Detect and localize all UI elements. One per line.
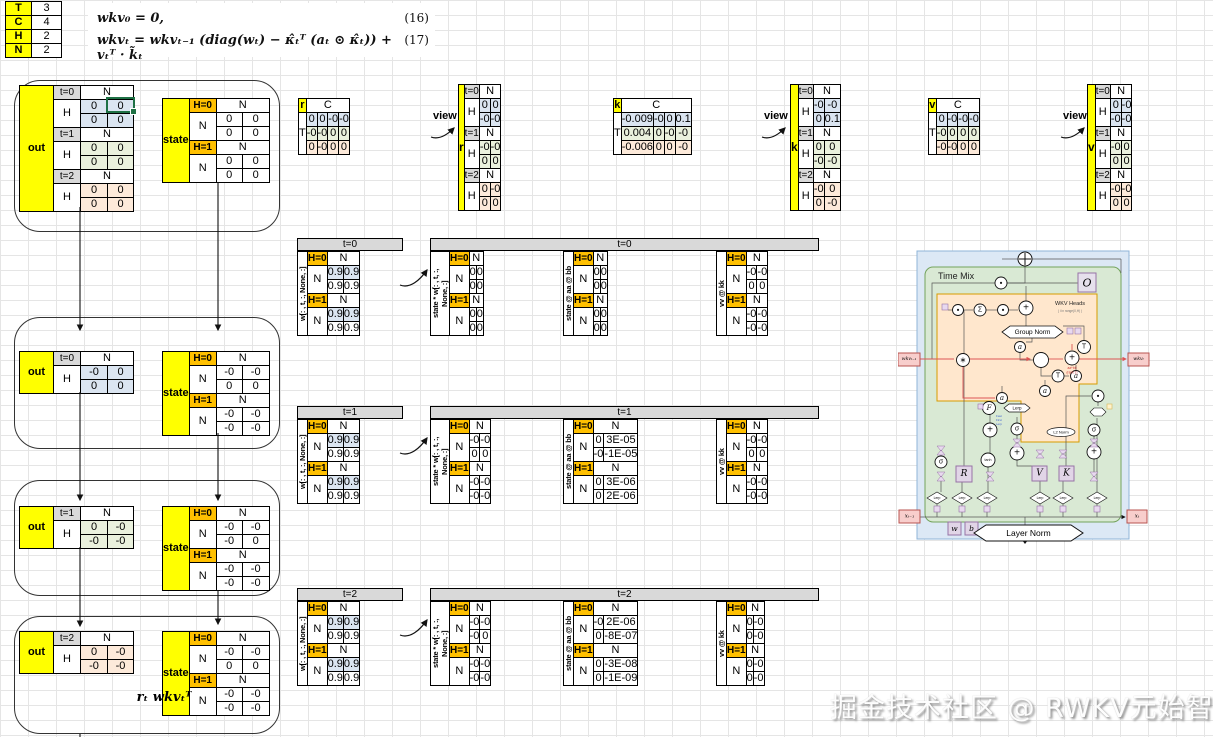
row-label-cell[interactable]: N xyxy=(189,155,216,183)
value-cell[interactable]: 0 xyxy=(947,127,958,141)
value-cell[interactable]: 0 xyxy=(969,127,980,141)
value-cell[interactable]: 0 xyxy=(476,308,483,322)
value-cell[interactable]: 0 xyxy=(242,155,269,169)
value-cell[interactable]: 0 xyxy=(242,169,269,183)
value-cell[interactable]: -0 xyxy=(242,563,269,577)
value-cell[interactable]: -3E-08 xyxy=(604,658,638,672)
value-cell[interactable]: 0 xyxy=(746,448,757,462)
row-label-cell[interactable]: T xyxy=(929,113,937,155)
table-label-cell[interactable]: r xyxy=(299,99,307,113)
value-cell[interactable]: -0 xyxy=(1110,183,1121,197)
table-label-cell[interactable]: v xyxy=(929,99,937,113)
value-cell[interactable]: 0 xyxy=(746,630,753,644)
value-cell[interactable]: -0 xyxy=(593,616,604,630)
block-header-cell[interactable]: H=1 xyxy=(450,462,470,476)
value-cell[interactable]: -0 xyxy=(242,408,269,422)
value-cell[interactable]: -0 xyxy=(108,660,134,674)
block-header-cell[interactable]: t=1 xyxy=(1095,127,1110,141)
row-label-cell[interactable]: T xyxy=(299,113,307,155)
t-header[interactable]: t=0 xyxy=(430,238,819,251)
value-cell[interactable]: 0.9 xyxy=(327,658,343,672)
row-label-cell[interactable]: N xyxy=(727,616,747,644)
value-cell[interactable]: 0 xyxy=(469,308,476,322)
value-cell[interactable]: -0 xyxy=(746,322,757,336)
block-header-cell[interactable]: t=2 xyxy=(798,169,813,183)
value-cell[interactable]: 0 xyxy=(216,169,242,183)
value-cell[interactable]: -0 xyxy=(746,434,757,448)
col-header-cell[interactable]: N xyxy=(593,602,638,616)
value-cell[interactable]: 0 xyxy=(593,630,604,644)
value-cell[interactable]: 0 xyxy=(664,113,675,127)
col-header-cell[interactable]: N xyxy=(327,602,360,616)
value-cell[interactable]: 0 xyxy=(108,184,134,198)
value-cell[interactable]: 0.1 xyxy=(675,113,691,127)
value-cell[interactable]: 0 xyxy=(593,308,600,322)
block-header-cell[interactable]: H=0 xyxy=(574,252,594,266)
value-cell[interactable]: 0.9 xyxy=(343,434,359,448)
value-cell[interactable]: 0 xyxy=(306,141,317,155)
value-cell[interactable]: -0 xyxy=(746,266,757,280)
row-label-cell[interactable]: H xyxy=(798,141,813,169)
value-cell[interactable]: -0 xyxy=(216,577,242,591)
block-header-cell[interactable]: H=0 xyxy=(574,420,594,434)
table-label-cell[interactable]: out xyxy=(20,632,54,674)
value-cell[interactable]: 0 xyxy=(108,142,134,156)
value-cell[interactable]: -0 xyxy=(242,577,269,591)
value-cell[interactable]: 0.9 xyxy=(343,658,359,672)
row-label-cell[interactable]: N xyxy=(574,658,594,686)
col-header-cell[interactable]: N xyxy=(746,252,768,266)
value-cell[interactable]: -0 xyxy=(317,127,328,141)
block-header-cell[interactable]: t=2 xyxy=(54,170,81,184)
value-cell[interactable]: 0.9 xyxy=(343,616,359,630)
value-cell[interactable]: -0 xyxy=(969,113,980,127)
col-header-cell[interactable]: N xyxy=(81,507,134,521)
block-header-cell[interactable]: H=0 xyxy=(189,507,216,521)
col-header-cell[interactable]: N xyxy=(813,169,840,183)
value-cell[interactable]: 0 xyxy=(593,490,604,504)
value-cell[interactable]: -0 xyxy=(746,490,757,504)
value-cell[interactable]: 0 xyxy=(824,183,840,197)
row-label-cell[interactable]: N xyxy=(308,434,328,462)
row-label-cell[interactable]: N xyxy=(727,308,747,336)
value-cell[interactable]: 0.9 xyxy=(343,476,359,490)
table-label-cell[interactable]: state * w[: , t, :, None, :] xyxy=(431,602,450,686)
value-cell[interactable]: 0 xyxy=(1121,155,1132,169)
value-cell[interactable]: 0.9 xyxy=(327,672,343,686)
value-cell[interactable]: 0 xyxy=(479,155,490,169)
col-header-cell[interactable]: N xyxy=(1110,127,1132,141)
value-cell[interactable]: -0 xyxy=(216,535,242,549)
row-label-cell[interactable]: N xyxy=(308,616,328,644)
row-label-cell[interactable]: N xyxy=(727,476,747,504)
row-label-cell[interactable]: N xyxy=(727,434,747,462)
value-cell[interactable]: 0.9 xyxy=(343,448,359,462)
col-header-cell[interactable]: N xyxy=(81,128,134,142)
block-header-cell[interactable]: H=0 xyxy=(727,602,747,616)
value-cell[interactable]: 0 xyxy=(480,630,491,644)
value-cell[interactable]: 0 xyxy=(593,322,600,336)
col-header-cell[interactable]: N xyxy=(593,420,638,434)
value-cell[interactable]: 0 xyxy=(593,434,604,448)
block-header-cell[interactable]: H=1 xyxy=(189,674,216,688)
param-label-cell[interactable]: H xyxy=(6,30,32,44)
value-cell[interactable]: 0.9 xyxy=(327,434,343,448)
block-header-cell[interactable]: H=1 xyxy=(450,294,470,308)
value-cell[interactable]: 0 xyxy=(328,141,339,155)
value-cell[interactable]: -0 xyxy=(480,490,491,504)
table-label-cell[interactable]: state @ aa @ bb xyxy=(564,420,574,504)
col-header-cell[interactable]: N xyxy=(746,294,768,308)
row-label-cell[interactable]: N xyxy=(727,266,747,294)
col-header-cell[interactable]: N xyxy=(469,420,491,434)
row-label-cell[interactable]: H xyxy=(464,141,479,169)
value-cell[interactable]: -0 xyxy=(469,658,480,672)
block-header-cell[interactable]: H=1 xyxy=(189,549,216,563)
value-cell[interactable]: -0 xyxy=(753,630,764,644)
value-cell[interactable]: -0 xyxy=(824,197,840,211)
value-cell[interactable]: -0 xyxy=(339,113,350,127)
row-label-cell[interactable]: N xyxy=(727,658,747,686)
table-label-cell[interactable]: k xyxy=(791,85,799,211)
value-cell[interactable]: 0 xyxy=(593,672,604,686)
col-header-cell[interactable]: N xyxy=(81,632,134,646)
value-cell[interactable]: 0.004 xyxy=(621,127,653,141)
value-cell[interactable]: -0 xyxy=(675,127,691,141)
value-cell[interactable]: -0 xyxy=(108,646,134,660)
value-cell[interactable]: -0 xyxy=(216,408,242,422)
value-cell[interactable]: -0 xyxy=(242,646,269,660)
value-cell[interactable]: 2E-06 xyxy=(604,490,638,504)
value-cell[interactable]: -0 xyxy=(824,155,840,169)
value-cell[interactable]: 0 xyxy=(593,658,604,672)
value-cell[interactable]: 0 xyxy=(1110,197,1121,211)
value-cell[interactable]: 3E-05 xyxy=(604,434,638,448)
value-cell[interactable]: 0 xyxy=(242,113,269,127)
value-cell[interactable]: 0 xyxy=(469,266,476,280)
value-cell[interactable]: -0 xyxy=(81,660,108,674)
value-cell[interactable]: 0 xyxy=(746,658,753,672)
value-cell[interactable]: 0 xyxy=(81,142,108,156)
value-cell[interactable]: 0 xyxy=(600,322,607,336)
t-header[interactable]: t=2 xyxy=(297,588,403,601)
param-value-cell[interactable]: 4 xyxy=(32,16,62,30)
value-cell[interactable]: 0.9 xyxy=(327,322,343,336)
block-header-cell[interactable]: H=1 xyxy=(450,644,470,658)
row-label-cell[interactable]: N xyxy=(308,658,328,686)
row-label-cell[interactable]: N xyxy=(189,113,216,141)
value-cell[interactable]: 0 xyxy=(108,114,134,128)
col-header-cell[interactable]: N xyxy=(746,602,764,616)
block-header-cell[interactable]: t=0 xyxy=(54,86,81,100)
value-cell[interactable]: 0 xyxy=(593,266,600,280)
value-cell[interactable]: 0 xyxy=(490,155,501,169)
row-label-cell[interactable]: H xyxy=(464,183,479,211)
col-header-cell[interactable]: N xyxy=(327,252,360,266)
value-cell[interactable]: 0 xyxy=(242,127,269,141)
value-cell[interactable]: 0 xyxy=(757,280,768,294)
value-cell[interactable]: 0 xyxy=(469,280,476,294)
value-cell[interactable]: 0 xyxy=(746,672,753,686)
value-cell[interactable]: 0 xyxy=(216,660,242,674)
value-cell[interactable]: 0.9 xyxy=(343,630,359,644)
value-cell[interactable]: 0 xyxy=(824,141,840,155)
row-label-cell[interactable]: N xyxy=(574,266,594,294)
row-label-cell[interactable]: N xyxy=(450,308,470,336)
value-cell[interactable]: 0.9 xyxy=(327,448,343,462)
row-label-cell[interactable]: N xyxy=(308,308,328,336)
value-cell[interactable]: 0 xyxy=(479,197,490,211)
value-cell[interactable]: -0 xyxy=(947,113,958,127)
value-cell[interactable]: 0 xyxy=(81,380,108,394)
col-header-cell[interactable]: N xyxy=(216,394,269,408)
value-cell[interactable]: 0 xyxy=(469,322,476,336)
value-cell[interactable]: -0 xyxy=(1121,113,1132,127)
table-label-cell[interactable]: vv @ kk xyxy=(717,602,727,686)
rwkv-architecture-diagram[interactable]: Time Mix O • • Σ • + a T ∗ + T a a a • F… xyxy=(898,246,1150,544)
row-label-cell[interactable]: N xyxy=(450,434,470,462)
col-header-cell[interactable]: N xyxy=(469,462,491,476)
block-header-cell[interactable]: H=0 xyxy=(727,252,747,266)
value-cell[interactable]: 0.9 xyxy=(343,308,359,322)
value-cell[interactable]: -0 xyxy=(1121,183,1132,197)
value-cell[interactable]: -0 xyxy=(675,141,691,155)
value-cell[interactable]: 0.9 xyxy=(343,322,359,336)
value-cell[interactable]: 0 xyxy=(593,280,600,294)
block-header-cell[interactable]: t=0 xyxy=(54,352,81,366)
block-header-cell[interactable]: H=1 xyxy=(308,462,328,476)
col-header-cell[interactable]: N xyxy=(216,549,269,563)
t-header[interactable]: t=1 xyxy=(297,406,403,419)
row-label-cell[interactable]: H xyxy=(798,99,813,127)
col-header-cell[interactable]: N xyxy=(216,632,269,646)
value-cell[interactable]: -0 xyxy=(813,183,824,197)
value-cell[interactable]: 0 xyxy=(81,521,108,535)
row-label-cell[interactable]: N xyxy=(308,476,328,504)
value-cell[interactable]: -0 xyxy=(216,646,242,660)
table-label-cell[interactable]: w[: , t, :, None, :] xyxy=(298,602,308,686)
value-cell[interactable]: -0 xyxy=(664,127,675,141)
row-label-cell[interactable]: N xyxy=(308,266,328,294)
value-cell[interactable]: -0 xyxy=(469,476,480,490)
value-cell[interactable]: -0 xyxy=(328,113,339,127)
block-header-cell[interactable]: H=1 xyxy=(308,644,328,658)
block-header-cell[interactable]: H=1 xyxy=(574,462,594,476)
col-header-cell[interactable]: N xyxy=(216,141,269,155)
value-cell[interactable]: 0 xyxy=(108,198,134,212)
param-value-cell[interactable]: 2 xyxy=(32,30,62,44)
value-cell[interactable]: 0 xyxy=(476,266,483,280)
value-cell[interactable]: -0 xyxy=(469,434,480,448)
row-label-cell[interactable]: H xyxy=(54,142,81,170)
value-cell[interactable]: -0 xyxy=(480,658,491,672)
value-cell[interactable]: 0 xyxy=(108,380,134,394)
value-cell[interactable]: 0 xyxy=(81,184,108,198)
row-label-cell[interactable]: N xyxy=(450,658,470,686)
col-header-cell[interactable]: N xyxy=(746,462,768,476)
value-cell[interactable]: 0 xyxy=(479,99,490,113)
value-cell[interactable]: -0 xyxy=(1121,99,1132,113)
table-label-cell[interactable]: w[: , t, :, None, :] xyxy=(298,252,308,336)
value-cell[interactable]: 0 xyxy=(479,183,490,197)
value-cell[interactable]: -0 xyxy=(490,113,501,127)
value-cell[interactable]: 0 xyxy=(1121,197,1132,211)
col-header-cell[interactable]: N xyxy=(469,294,483,308)
value-cell[interactable]: 0 xyxy=(476,322,483,336)
value-cell[interactable]: 0.9 xyxy=(327,490,343,504)
value-cell[interactable]: -0 xyxy=(242,521,269,535)
value-cell[interactable]: -0 xyxy=(479,113,490,127)
value-cell[interactable]: 0 xyxy=(593,476,604,490)
view-label[interactable]: view xyxy=(1063,110,1087,122)
view-label[interactable]: view xyxy=(433,110,457,122)
table-label-cell[interactable]: v xyxy=(1088,85,1096,211)
value-cell[interactable]: -0 xyxy=(947,141,958,155)
value-cell[interactable]: -0 xyxy=(757,434,768,448)
value-cell[interactable]: 2E-06 xyxy=(604,616,638,630)
value-cell[interactable]: -0 xyxy=(746,308,757,322)
value-cell[interactable]: 0 xyxy=(490,197,501,211)
param-value-cell[interactable]: 3 xyxy=(32,2,62,16)
block-header-cell[interactable]: H=0 xyxy=(308,420,328,434)
value-cell[interactable]: -0 xyxy=(216,563,242,577)
value-cell[interactable]: 0 xyxy=(813,141,824,155)
value-cell[interactable]: -0 xyxy=(242,702,269,716)
value-cell[interactable]: 0 xyxy=(81,156,108,170)
value-cell[interactable]: -0 xyxy=(242,688,269,702)
t-header[interactable]: t=2 xyxy=(430,588,819,601)
row-label-cell[interactable]: H xyxy=(54,184,81,212)
value-cell[interactable]: 0 xyxy=(653,141,664,155)
block-header-cell[interactable]: t=2 xyxy=(54,632,81,646)
value-cell[interactable]: 0 xyxy=(242,380,269,394)
value-cell[interactable]: -0 xyxy=(958,113,969,127)
table-label-cell[interactable]: state xyxy=(163,507,190,591)
value-cell[interactable]: 0 xyxy=(476,280,483,294)
value-cell[interactable]: -0.006 xyxy=(621,141,653,155)
value-cell[interactable]: 0 xyxy=(969,141,980,155)
row-label-cell[interactable]: N xyxy=(450,266,470,294)
value-cell[interactable]: 0 xyxy=(242,535,269,549)
col-header-cell[interactable]: N xyxy=(216,507,269,521)
t-header[interactable]: t=1 xyxy=(430,406,819,419)
value-cell[interactable]: -0 xyxy=(479,141,490,155)
table-label-cell[interactable]: state xyxy=(163,352,190,436)
value-cell[interactable]: -0 xyxy=(757,266,768,280)
col-header-cell[interactable]: N xyxy=(81,170,134,184)
value-cell[interactable]: 0.9 xyxy=(343,672,359,686)
block-header-cell[interactable]: H=0 xyxy=(308,252,328,266)
row-label-cell[interactable]: T xyxy=(614,113,622,155)
value-cell[interactable]: 0 xyxy=(653,127,664,141)
value-cell[interactable]: -0 xyxy=(813,99,824,113)
value-cell[interactable]: 0 xyxy=(746,280,757,294)
row-label-cell[interactable]: N xyxy=(574,476,594,504)
block-header-cell[interactable]: H=1 xyxy=(727,462,747,476)
value-cell[interactable]: 0 xyxy=(1110,155,1121,169)
value-cell[interactable]: -0 xyxy=(469,616,480,630)
value-cell[interactable]: -0 xyxy=(757,490,768,504)
value-cell[interactable]: -0 xyxy=(108,535,134,549)
value-cell[interactable]: 0 xyxy=(936,113,947,127)
col-header-cell[interactable]: N xyxy=(1110,169,1132,183)
row-label-cell[interactable]: H xyxy=(798,183,813,211)
col-header-cell[interactable]: N xyxy=(469,644,491,658)
value-cell[interactable]: -0 xyxy=(480,672,491,686)
col-header-cell[interactable]: N xyxy=(469,602,491,616)
col-header-cell[interactable]: N xyxy=(813,85,840,99)
value-cell[interactable]: -0.009 xyxy=(621,113,653,127)
param-label-cell[interactable]: T xyxy=(6,2,32,16)
value-cell[interactable]: -0 xyxy=(824,99,840,113)
value-cell[interactable]: 0 xyxy=(469,448,480,462)
row-label-cell[interactable]: N xyxy=(574,434,594,462)
value-cell[interactable]: -0 xyxy=(936,127,947,141)
value-cell[interactable]: 0 xyxy=(216,113,242,127)
col-header-cell[interactable]: N xyxy=(746,644,764,658)
table-label-cell[interactable]: state * w[: , t, :, None, :] xyxy=(431,420,450,504)
col-header-cell[interactable]: N xyxy=(813,127,840,141)
block-header-cell[interactable]: H=0 xyxy=(189,632,216,646)
block-header-cell[interactable]: t=2 xyxy=(464,169,479,183)
value-cell[interactable]: -8E-07 xyxy=(604,630,638,644)
value-cell[interactable]: 0.9 xyxy=(327,266,343,280)
value-cell[interactable]: -0 xyxy=(306,127,317,141)
value-cell[interactable]: 0 xyxy=(81,646,108,660)
value-cell[interactable]: -0 xyxy=(242,422,269,436)
block-header-cell[interactable]: t=1 xyxy=(464,127,479,141)
col-header-cell[interactable]: N xyxy=(746,420,768,434)
block-header-cell[interactable]: H=0 xyxy=(450,420,470,434)
col-header-cell[interactable]: N xyxy=(593,294,607,308)
value-cell[interactable]: -0 xyxy=(490,141,501,155)
block-header-cell[interactable]: t=1 xyxy=(798,127,813,141)
value-cell[interactable]: -0 xyxy=(753,672,764,686)
col-header-cell[interactable]: N xyxy=(469,252,483,266)
table-label-cell[interactable]: state * w[: , t, :, None, :] xyxy=(431,252,450,336)
block-header-cell[interactable]: H=1 xyxy=(574,294,594,308)
value-cell[interactable]: -0 xyxy=(813,155,824,169)
table-label-cell[interactable]: vv @ kk xyxy=(717,252,727,336)
value-cell[interactable]: -0 xyxy=(216,521,242,535)
col-header-cell[interactable]: N xyxy=(593,644,638,658)
row-label-cell[interactable]: N xyxy=(189,408,216,436)
value-cell[interactable]: -0 xyxy=(653,113,664,127)
table-label-cell[interactable]: state xyxy=(163,99,190,183)
param-label-cell[interactable]: C xyxy=(6,16,32,30)
value-cell[interactable]: -0 xyxy=(469,630,480,644)
value-cell[interactable]: -0 xyxy=(108,521,134,535)
table-label-cell[interactable]: out xyxy=(20,86,54,212)
value-cell[interactable]: -0 xyxy=(757,308,768,322)
value-cell[interactable]: 0 xyxy=(746,616,753,630)
param-value-cell[interactable]: 2 xyxy=(32,44,62,58)
value-cell[interactable]: 3E-06 xyxy=(604,476,638,490)
value-cell[interactable]: -0 xyxy=(757,322,768,336)
table-label-cell[interactable]: state @ aa @ bb xyxy=(564,602,574,686)
value-cell[interactable]: -0 xyxy=(490,183,501,197)
value-cell[interactable]: 0 xyxy=(1110,99,1121,113)
value-cell[interactable]: 0.1 xyxy=(824,113,840,127)
value-cell[interactable]: -0 xyxy=(480,616,491,630)
value-cell[interactable]: -0 xyxy=(757,476,768,490)
col-header-cell[interactable]: N xyxy=(216,674,269,688)
block-header-cell[interactable]: H=1 xyxy=(574,644,594,658)
block-header-cell[interactable]: H=1 xyxy=(727,294,747,308)
value-cell[interactable]: -1E-09 xyxy=(604,672,638,686)
block-header-cell[interactable]: H=1 xyxy=(189,394,216,408)
param-label-cell[interactable]: N xyxy=(6,44,32,58)
